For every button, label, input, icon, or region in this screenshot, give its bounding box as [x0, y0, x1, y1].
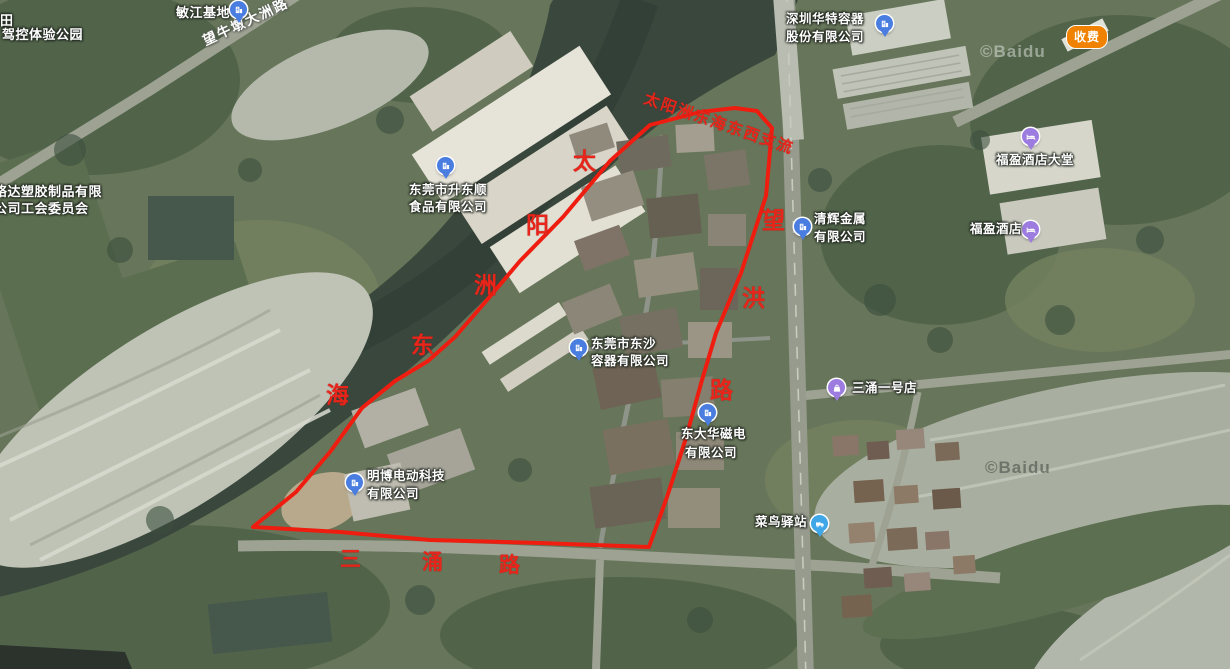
company-poi-icon[interactable]: [699, 404, 716, 421]
poi-label-sanchong-store[interactable]: 三涌一号店: [852, 381, 917, 397]
poi-label-luoda-line1[interactable]: 络达塑胶制品有限: [0, 184, 102, 200]
wanghong-road-char: 路: [710, 379, 733, 402]
river-name-char: 太: [573, 150, 596, 173]
river-name-char: 海: [326, 384, 349, 407]
building-icon: [880, 19, 889, 28]
building-icon: [350, 478, 359, 487]
poi-label-qinghui-line1[interactable]: 清辉金属: [814, 212, 866, 228]
shop-poi-icon[interactable]: [828, 379, 845, 396]
poi-label-huate-line2[interactable]: 股份有限公司: [786, 30, 864, 46]
poi-label-shengdongshun-line2[interactable]: 食品有限公司: [409, 200, 487, 216]
poi-label-shengdongshun-line1[interactable]: 东莞市升东顺: [409, 183, 487, 199]
company-poi-icon[interactable]: [346, 474, 363, 491]
sanchong-road-char: 涌: [422, 552, 443, 573]
wanghong-road-char: 洪: [742, 287, 765, 310]
building-icon: [703, 408, 712, 417]
poi-label-dongdahua-line1[interactable]: 东大华磁电: [681, 427, 746, 443]
company-poi-icon[interactable]: [230, 1, 247, 18]
poi-label-dongsha-line2[interactable]: 容器有限公司: [591, 354, 669, 370]
building-icon: [234, 5, 243, 14]
satellite-imagery: [0, 0, 1230, 669]
poi-label-fuying-hotel[interactable]: 福盈酒店: [970, 222, 1022, 238]
satellite-map-viewport[interactable]: ©Baidu ©Baidu 田 驾控体验公园 敏江基地 望牛墩大洲路 络达塑胶制…: [0, 0, 1230, 669]
baidu-watermark-bottom: ©Baidu: [985, 458, 1051, 478]
building-icon: [441, 161, 450, 170]
river-name-char: 洲: [474, 274, 497, 297]
toll-station-badge[interactable]: 收费: [1066, 25, 1108, 49]
hotel-poi-icon[interactable]: [1022, 128, 1039, 145]
poi-label-minjiang-base[interactable]: 敏江基地: [176, 5, 230, 21]
river-name-char: 东: [411, 334, 434, 357]
poi-label-dongdahua-line2[interactable]: 有限公司: [685, 446, 737, 462]
sanchong-road-char: 三: [340, 549, 361, 570]
building-icon: [574, 343, 583, 352]
express-station-poi-icon[interactable]: [811, 515, 828, 532]
poi-label-mingbo-line2[interactable]: 有限公司: [367, 487, 419, 503]
baidu-watermark-top: ©Baidu: [980, 42, 1046, 62]
river-name-char: 阳: [526, 214, 549, 237]
poi-label-huate-line1[interactable]: 深圳华特容器: [786, 12, 864, 28]
company-poi-icon[interactable]: [876, 15, 893, 32]
poi-label-cainiao[interactable]: 菜鸟驿站: [755, 515, 807, 531]
delivery-truck-icon: [815, 519, 825, 529]
poi-label-fuying-lobby[interactable]: 福盈酒店大堂: [996, 153, 1074, 169]
shopping-bag-icon: [832, 383, 842, 393]
company-poi-icon[interactable]: [794, 218, 811, 235]
hotel-poi-icon[interactable]: [1022, 221, 1039, 238]
poi-label-dongsha-line1[interactable]: 东莞市东沙: [591, 337, 656, 353]
poi-label-jiakong-park[interactable]: 驾控体验公园: [2, 27, 83, 43]
sanchong-road-char: 路: [499, 555, 520, 576]
wanghong-road-char: 望: [762, 209, 785, 232]
poi-label-qinghui-line2[interactable]: 有限公司: [814, 230, 866, 246]
bed-icon: [1026, 225, 1036, 235]
poi-label-mingbo-line1[interactable]: 明博电动科技: [367, 469, 445, 485]
building-icon: [798, 222, 807, 231]
company-poi-icon[interactable]: [437, 157, 454, 174]
bed-icon: [1026, 132, 1036, 142]
company-poi-icon[interactable]: [570, 339, 587, 356]
poi-label-luoda-line2[interactable]: 公司工会委员会: [0, 201, 89, 217]
